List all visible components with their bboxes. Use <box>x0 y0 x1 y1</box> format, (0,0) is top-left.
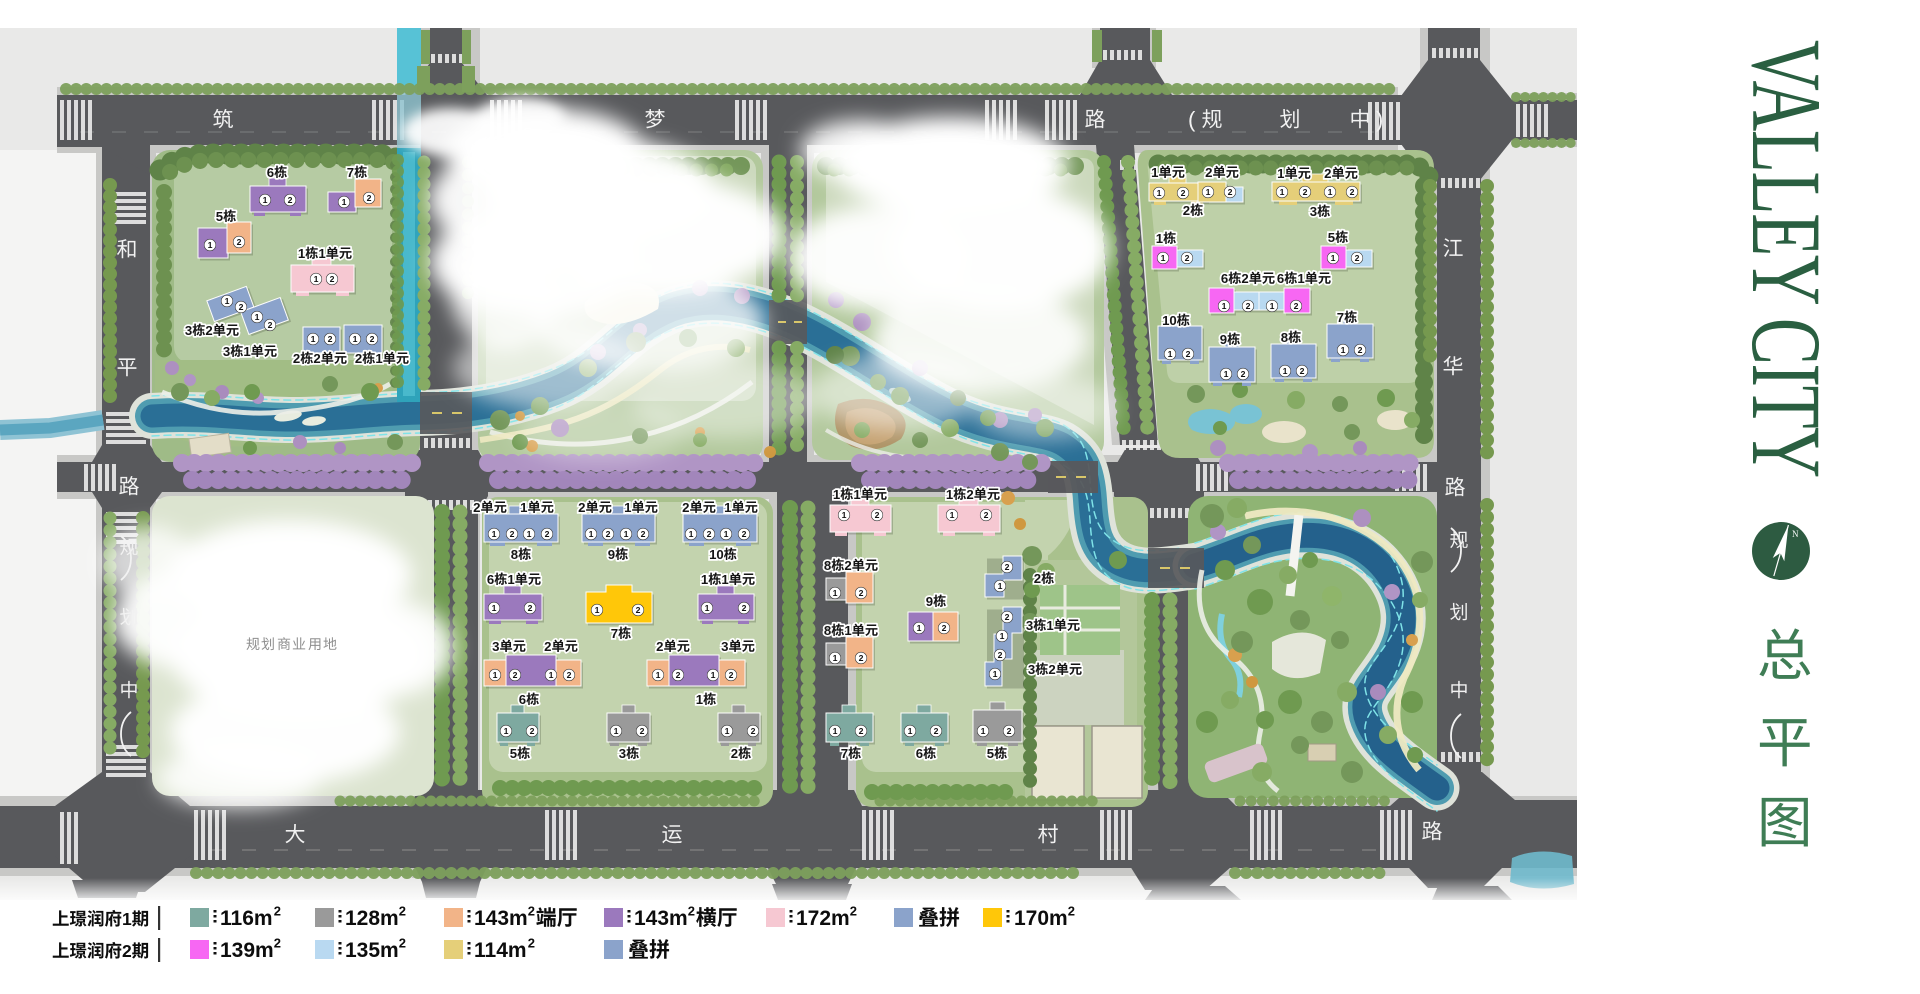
svg-text:5: 5 <box>216 209 223 224</box>
svg-text:1: 1 <box>917 623 922 633</box>
svg-text:2: 2 <box>707 529 712 539</box>
svg-text:1: 1 <box>998 581 1003 591</box>
svg-text:1: 1 <box>527 529 532 539</box>
svg-text:1: 1 <box>1161 253 1166 263</box>
svg-text:139m: 139m <box>220 939 274 962</box>
svg-text:3: 3 <box>492 639 499 654</box>
svg-text:1: 1 <box>844 623 851 638</box>
svg-text:1: 1 <box>1000 631 1005 641</box>
svg-text:1: 1 <box>589 529 594 539</box>
svg-text:2: 2 <box>399 904 406 919</box>
svg-text:1: 1 <box>842 510 847 520</box>
svg-text:2: 2 <box>859 588 864 598</box>
svg-text:1: 1 <box>504 726 509 736</box>
svg-text:143m: 143m <box>474 907 528 930</box>
svg-text:1: 1 <box>1270 301 1275 311</box>
svg-text:1: 1 <box>709 547 716 562</box>
svg-text:9: 9 <box>608 547 615 562</box>
svg-text:2: 2 <box>729 670 734 680</box>
svg-text:2: 2 <box>1005 612 1010 622</box>
svg-text:2: 2 <box>288 195 293 205</box>
svg-text:8: 8 <box>824 623 831 638</box>
svg-text:2: 2 <box>1241 369 1246 379</box>
svg-text:2: 2 <box>1181 188 1186 198</box>
svg-text:(: ( <box>1188 107 1196 132</box>
svg-text:6: 6 <box>1221 271 1228 286</box>
svg-text:128m: 128m <box>345 907 399 930</box>
svg-text:2: 2 <box>544 639 551 654</box>
svg-text:1: 1 <box>946 487 953 502</box>
svg-text:2: 2 <box>676 670 681 680</box>
svg-text:1: 1 <box>853 487 860 502</box>
svg-text:2: 2 <box>656 639 663 654</box>
svg-text:2: 2 <box>239 302 244 312</box>
svg-text:2: 2 <box>640 726 645 736</box>
svg-text:116m: 116m <box>220 907 273 930</box>
svg-text:2: 2 <box>844 558 851 573</box>
svg-text:6: 6 <box>916 746 923 761</box>
svg-text:2: 2 <box>530 726 535 736</box>
svg-text:2: 2 <box>859 726 864 736</box>
svg-text:1: 1 <box>724 529 729 539</box>
svg-text:2: 2 <box>237 237 242 247</box>
svg-text:1: 1 <box>656 670 661 680</box>
svg-text:0: 0 <box>1169 313 1176 328</box>
svg-text:2: 2 <box>641 529 646 539</box>
svg-text:2: 2 <box>1300 366 1305 376</box>
svg-text:1: 1 <box>507 572 514 587</box>
svg-text:): ) <box>1376 107 1383 132</box>
svg-text:2: 2 <box>1005 562 1010 572</box>
svg-text:2: 2 <box>1241 271 1248 286</box>
svg-text:1: 1 <box>342 197 347 207</box>
svg-text:2: 2 <box>399 936 406 951</box>
svg-text:2: 2 <box>606 529 611 539</box>
svg-text:170m: 170m <box>1014 907 1068 930</box>
svg-text:2: 2 <box>984 510 989 520</box>
svg-text:5: 5 <box>1328 230 1335 245</box>
svg-text:2: 2 <box>731 746 738 761</box>
svg-text:2: 2 <box>578 500 585 515</box>
svg-text:6: 6 <box>267 165 274 180</box>
svg-text:VALLEY CITY: VALLEY CITY <box>1731 40 1842 477</box>
svg-text:2: 2 <box>473 500 480 515</box>
svg-text:1: 1 <box>311 334 316 344</box>
svg-text:6: 6 <box>1277 271 1284 286</box>
svg-text:2: 2 <box>1186 349 1191 359</box>
svg-text:2: 2 <box>942 623 947 633</box>
svg-text:1: 1 <box>1157 188 1162 198</box>
svg-text:2: 2 <box>875 510 880 520</box>
svg-text:1: 1 <box>1331 253 1336 263</box>
svg-text:1: 1 <box>1280 187 1285 197</box>
svg-text:N: N <box>1792 529 1799 539</box>
svg-text:2: 2 <box>1068 904 1075 919</box>
svg-text:1: 1 <box>725 726 730 736</box>
svg-text:2: 2 <box>742 603 747 613</box>
svg-text:1: 1 <box>493 670 498 680</box>
svg-text:5: 5 <box>510 746 517 761</box>
svg-text:1: 1 <box>689 529 694 539</box>
svg-text:2: 2 <box>274 936 281 951</box>
svg-text:1: 1 <box>298 246 305 261</box>
svg-text:1: 1 <box>721 572 728 587</box>
svg-text:1: 1 <box>614 726 619 736</box>
svg-text:1: 1 <box>981 726 986 736</box>
svg-text:2: 2 <box>1355 253 1360 263</box>
svg-text:2: 2 <box>966 487 973 502</box>
svg-text:1: 1 <box>1297 271 1304 286</box>
svg-text:9: 9 <box>926 594 933 609</box>
svg-text:1: 1 <box>208 240 213 250</box>
svg-text:2: 2 <box>1246 301 1251 311</box>
svg-text:2: 2 <box>636 605 641 615</box>
svg-text:2: 2 <box>330 274 335 284</box>
svg-text:8: 8 <box>511 547 518 562</box>
svg-text:2: 2 <box>751 726 756 736</box>
svg-text:1: 1 <box>1206 187 1211 197</box>
svg-text:2: 2 <box>850 904 857 919</box>
svg-text:3: 3 <box>223 344 230 359</box>
svg-text:2: 2 <box>1034 571 1041 586</box>
svg-text:2: 2 <box>934 726 939 736</box>
svg-text:1: 1 <box>1283 366 1288 376</box>
svg-text:0: 0 <box>716 547 723 562</box>
svg-text:2: 2 <box>268 320 273 330</box>
svg-text:1: 1 <box>833 487 840 502</box>
svg-text:1: 1 <box>122 909 132 929</box>
svg-text:1: 1 <box>1046 618 1053 633</box>
svg-text:2: 2 <box>742 529 747 539</box>
svg-text:1: 1 <box>696 692 703 707</box>
svg-text:143m: 143m <box>634 907 688 930</box>
svg-text:8: 8 <box>1281 330 1288 345</box>
svg-text:6: 6 <box>519 692 526 707</box>
svg-text:5: 5 <box>987 746 994 761</box>
svg-text:2: 2 <box>859 653 864 663</box>
svg-text:2: 2 <box>355 351 362 366</box>
svg-text:7: 7 <box>841 746 848 761</box>
svg-text:2: 2 <box>510 529 515 539</box>
svg-text:2: 2 <box>513 670 518 680</box>
svg-text:2: 2 <box>998 650 1003 660</box>
svg-text:1: 1 <box>1224 369 1229 379</box>
svg-text:2: 2 <box>528 936 535 951</box>
svg-text:1: 1 <box>711 670 716 680</box>
svg-text:1: 1 <box>225 296 230 306</box>
svg-text:1: 1 <box>375 351 382 366</box>
svg-text:2: 2 <box>1007 726 1012 736</box>
svg-text:3: 3 <box>721 639 728 654</box>
svg-text:114m: 114m <box>474 939 527 962</box>
svg-text:3: 3 <box>619 746 626 761</box>
svg-text:1: 1 <box>1341 345 1346 355</box>
svg-text:1: 1 <box>1328 187 1333 197</box>
svg-text:3: 3 <box>1028 662 1035 677</box>
svg-text:2: 2 <box>205 323 212 338</box>
svg-text:8: 8 <box>824 558 831 573</box>
svg-text:2: 2 <box>528 904 535 919</box>
svg-text:2: 2 <box>367 193 372 203</box>
svg-text:1: 1 <box>724 500 731 515</box>
svg-text:172m: 172m <box>796 907 850 930</box>
svg-text:1: 1 <box>520 500 527 515</box>
svg-text:1: 1 <box>624 529 629 539</box>
svg-text:2: 2 <box>370 334 375 344</box>
svg-text:2: 2 <box>1324 166 1331 181</box>
svg-text:2: 2 <box>1358 345 1363 355</box>
svg-text:1: 1 <box>833 588 838 598</box>
svg-text:2: 2 <box>567 670 572 680</box>
svg-text:2: 2 <box>1350 187 1355 197</box>
svg-text:1: 1 <box>624 500 631 515</box>
svg-text:1: 1 <box>1222 301 1227 311</box>
svg-text:2: 2 <box>274 904 281 919</box>
svg-text:3: 3 <box>185 323 192 338</box>
svg-text:9: 9 <box>1220 332 1227 347</box>
svg-text:1: 1 <box>243 344 250 359</box>
svg-text:1: 1 <box>492 529 497 539</box>
svg-text:2: 2 <box>328 334 333 344</box>
svg-text:2: 2 <box>1303 187 1308 197</box>
svg-text:2: 2 <box>1048 662 1055 677</box>
svg-text:1: 1 <box>549 670 554 680</box>
svg-text:2: 2 <box>313 351 320 366</box>
svg-text:2: 2 <box>1205 165 1212 180</box>
svg-text:1: 1 <box>314 274 319 284</box>
svg-text:3: 3 <box>1026 618 1033 633</box>
svg-text:2: 2 <box>293 351 300 366</box>
svg-text:1: 1 <box>492 603 497 613</box>
svg-text:2: 2 <box>545 529 550 539</box>
svg-text:7: 7 <box>611 626 618 641</box>
svg-text:2: 2 <box>1294 301 1299 311</box>
svg-text:1: 1 <box>950 510 955 520</box>
svg-text:1: 1 <box>1162 313 1169 328</box>
svg-text:135m: 135m <box>345 939 399 962</box>
svg-text:1: 1 <box>1151 165 1158 180</box>
svg-text:1: 1 <box>353 334 358 344</box>
svg-text:2: 2 <box>122 941 132 961</box>
svg-text:2: 2 <box>1183 203 1190 218</box>
svg-text:1: 1 <box>833 726 838 736</box>
svg-text:1: 1 <box>1168 349 1173 359</box>
svg-text:1: 1 <box>705 603 710 613</box>
svg-text:1: 1 <box>993 669 998 679</box>
svg-text:6: 6 <box>487 572 494 587</box>
svg-text:1: 1 <box>1277 166 1284 181</box>
svg-text:1: 1 <box>701 572 708 587</box>
svg-text:2: 2 <box>528 603 533 613</box>
svg-text:2: 2 <box>688 904 695 919</box>
svg-text:2: 2 <box>1228 187 1233 197</box>
svg-text:1: 1 <box>908 726 913 736</box>
svg-text:1: 1 <box>255 312 260 322</box>
svg-text:2: 2 <box>682 500 689 515</box>
svg-text:7: 7 <box>1337 310 1344 325</box>
svg-text:2: 2 <box>1185 253 1190 263</box>
svg-text:7: 7 <box>347 165 354 180</box>
svg-text:1: 1 <box>833 653 838 663</box>
svg-text:1: 1 <box>1156 231 1163 246</box>
svg-text:1: 1 <box>595 605 600 615</box>
svg-text:3: 3 <box>1310 204 1317 219</box>
svg-text:1: 1 <box>318 246 325 261</box>
svg-text:1: 1 <box>263 195 268 205</box>
